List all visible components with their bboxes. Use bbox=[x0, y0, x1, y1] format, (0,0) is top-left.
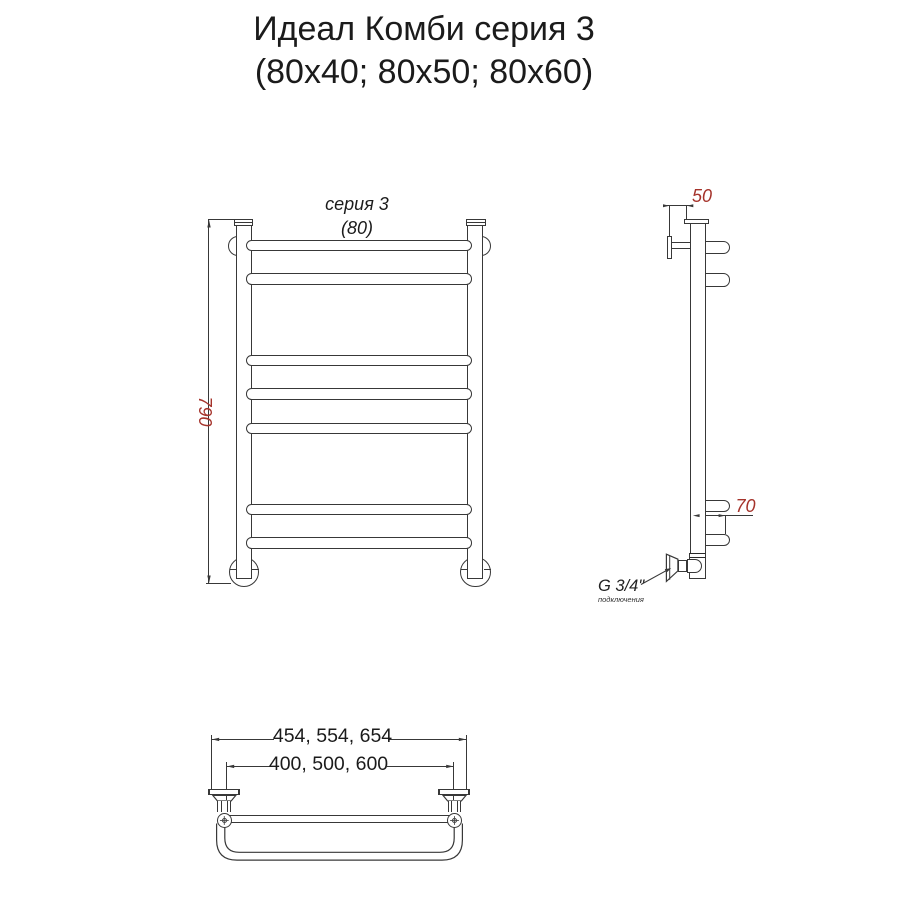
dim-arrow-left bbox=[212, 738, 219, 741]
dim-arrow-right bbox=[459, 738, 466, 741]
dim-arrow-left bbox=[693, 514, 700, 517]
leader-arrowhead bbox=[665, 568, 671, 573]
dim-arrow-right bbox=[446, 765, 453, 768]
dim-arrow-up bbox=[207, 220, 210, 228]
dim-arrow-left bbox=[687, 204, 693, 207]
drawing-page: Идеал Комби серия 3 (80x40; 80x50; 80x60… bbox=[0, 0, 900, 900]
dim-arrow-down bbox=[207, 576, 210, 584]
dim-arrow-right bbox=[719, 514, 726, 517]
dim-arrow-right bbox=[663, 204, 669, 207]
dim-arrow-left bbox=[227, 765, 234, 768]
thread-leader-line bbox=[641, 570, 667, 584]
arrows-overlay bbox=[0, 0, 900, 900]
